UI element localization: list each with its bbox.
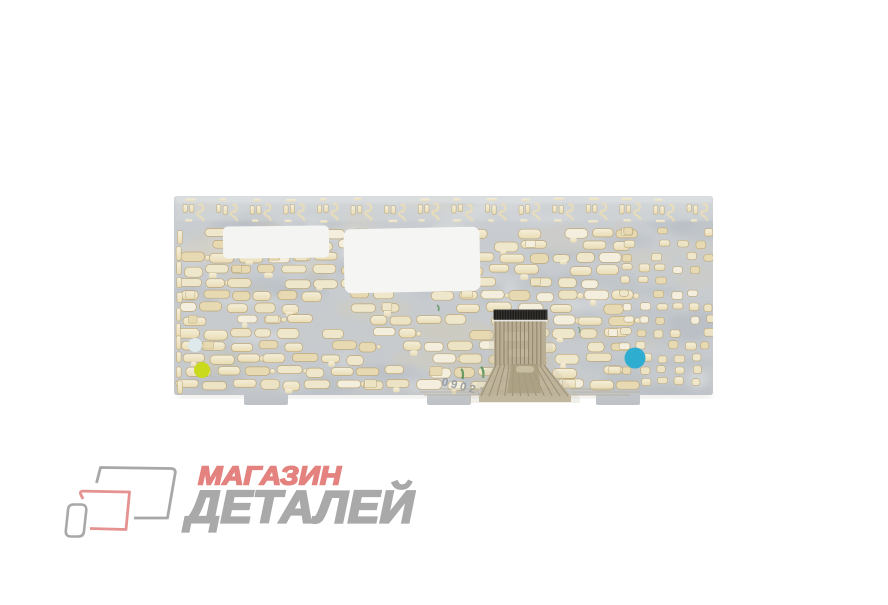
svg-text:ДЕТАЛЕЙ: ДЕТАЛЕЙ: [182, 482, 416, 533]
